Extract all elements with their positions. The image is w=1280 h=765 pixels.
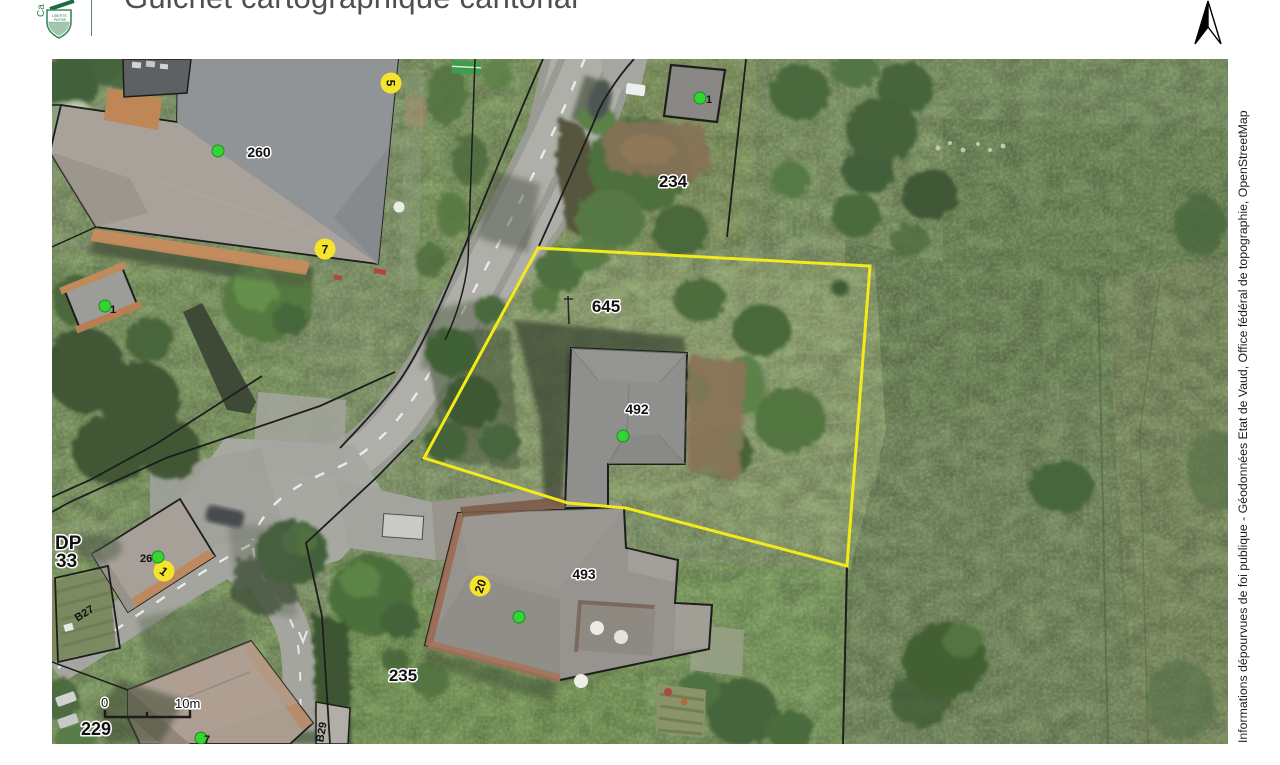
svg-text:1: 1 [706, 94, 712, 106]
svg-text:1: 1 [110, 304, 116, 316]
svg-text:492: 492 [625, 401, 649, 417]
svg-text:235: 235 [389, 666, 417, 685]
svg-text:PATRIE: PATRIE [54, 18, 67, 22]
svg-text:5: 5 [384, 80, 398, 87]
svg-text:645: 645 [592, 297, 620, 316]
svg-text:33: 33 [56, 551, 77, 572]
svg-text:260: 260 [247, 144, 271, 160]
svg-text:10m: 10m [175, 696, 200, 711]
svg-text:7: 7 [322, 243, 329, 257]
svg-text:7: 7 [204, 734, 210, 744]
svg-text:229: 229 [81, 719, 111, 739]
svg-text:234: 234 [659, 172, 688, 191]
svg-text:Ca: Ca [36, 4, 47, 17]
svg-text:493: 493 [572, 566, 596, 582]
svg-text:26: 26 [140, 553, 152, 565]
svg-text:0: 0 [101, 695, 108, 710]
